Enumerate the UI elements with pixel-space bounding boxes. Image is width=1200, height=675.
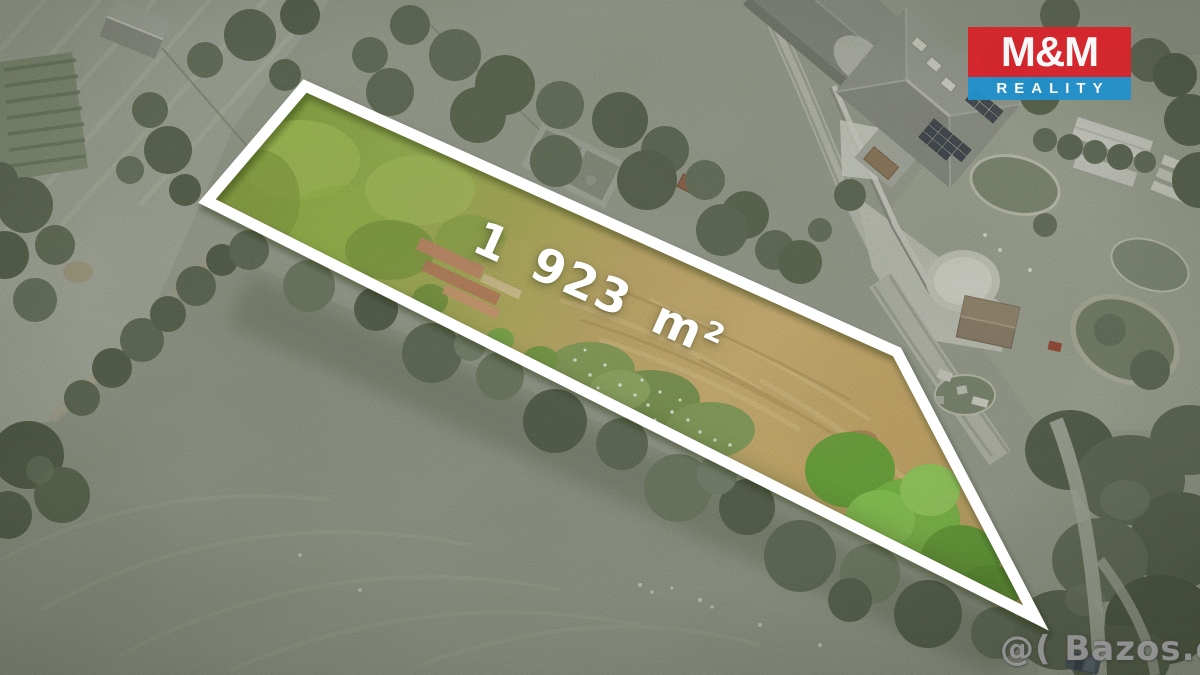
mm-reality-logo-wordmark: M&M (968, 27, 1131, 77)
mm-reality-logo: M&M REALITY (968, 27, 1131, 100)
mm-reality-logo-subtitle: REALITY (968, 77, 1131, 100)
aerial-photo (0, 0, 1200, 675)
screenshot-root: 1 923 m² M&M REALITY @( Bazos.cz (0, 0, 1200, 675)
bazos-watermark: @( Bazos.cz (1000, 629, 1200, 669)
